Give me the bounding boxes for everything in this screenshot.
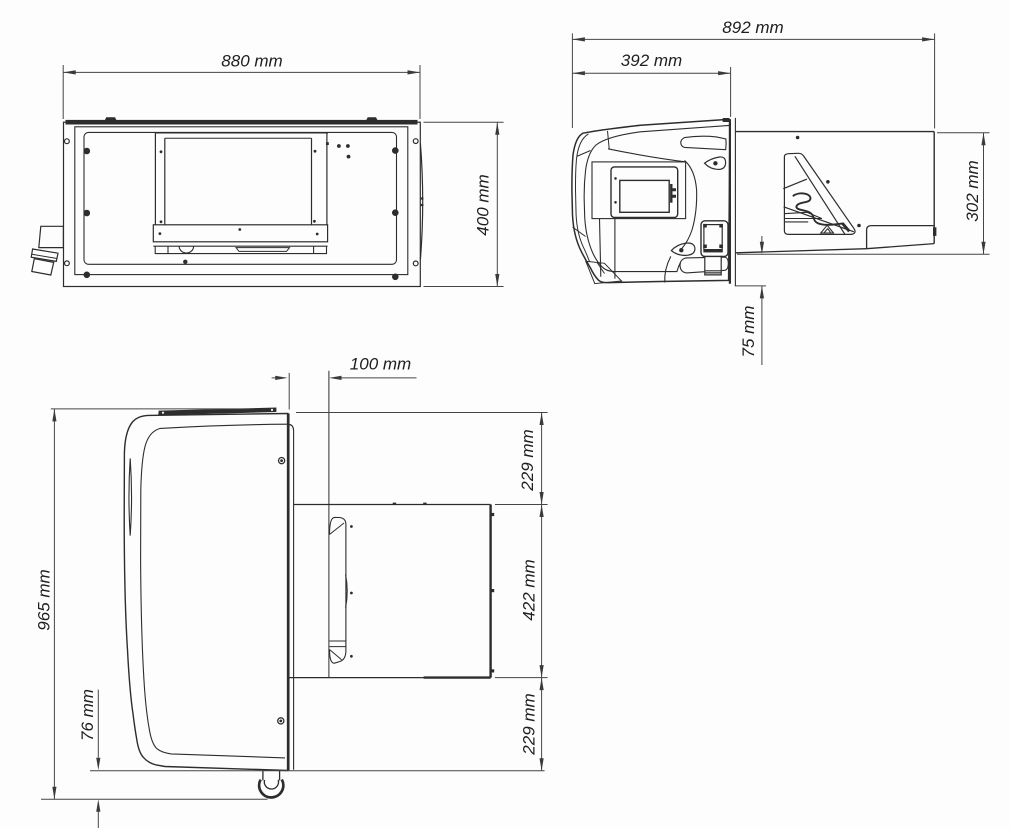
svg-text:422 mm: 422 mm — [520, 559, 539, 620]
svg-text:75 mm: 75 mm — [739, 306, 758, 358]
svg-text:400 mm: 400 mm — [474, 174, 493, 235]
svg-text:76 mm: 76 mm — [78, 689, 97, 741]
svg-text:880 mm: 880 mm — [221, 52, 282, 71]
svg-text:229 mm: 229 mm — [518, 429, 537, 491]
svg-text:892 mm: 892 mm — [722, 18, 783, 37]
svg-text:965 mm: 965 mm — [35, 569, 54, 630]
svg-text:100 mm: 100 mm — [350, 355, 411, 374]
svg-text:302 mm: 302 mm — [963, 160, 982, 221]
svg-text:392 mm: 392 mm — [621, 51, 682, 70]
svg-text:229 mm: 229 mm — [520, 693, 539, 755]
